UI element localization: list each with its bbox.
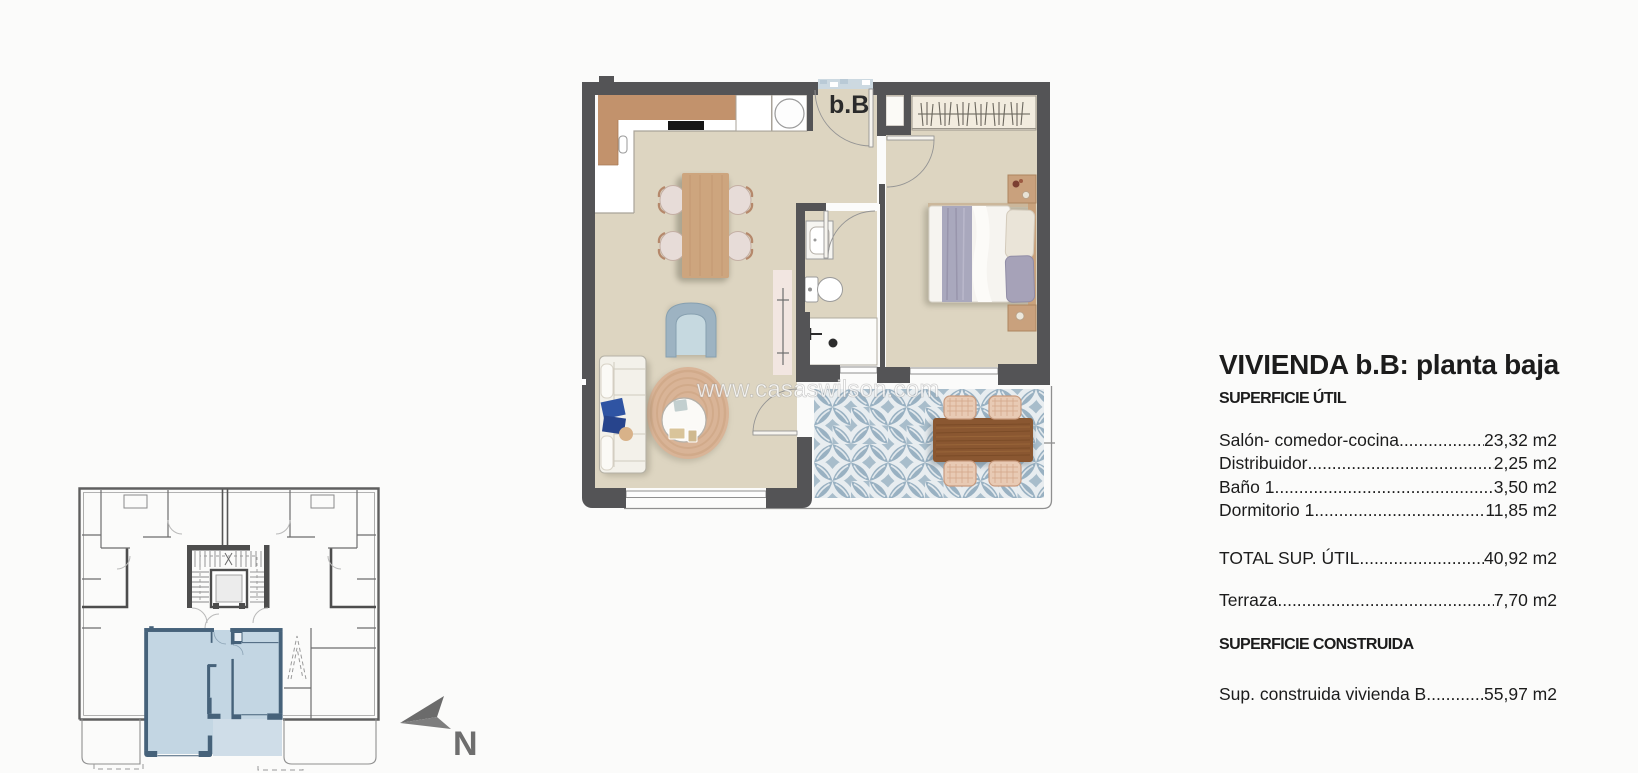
svg-text:www.casaswilson.com: www.casaswilson.com [696,376,940,403]
svg-text:b.B: b.B [829,91,869,119]
svg-text:N: N [453,725,478,763]
